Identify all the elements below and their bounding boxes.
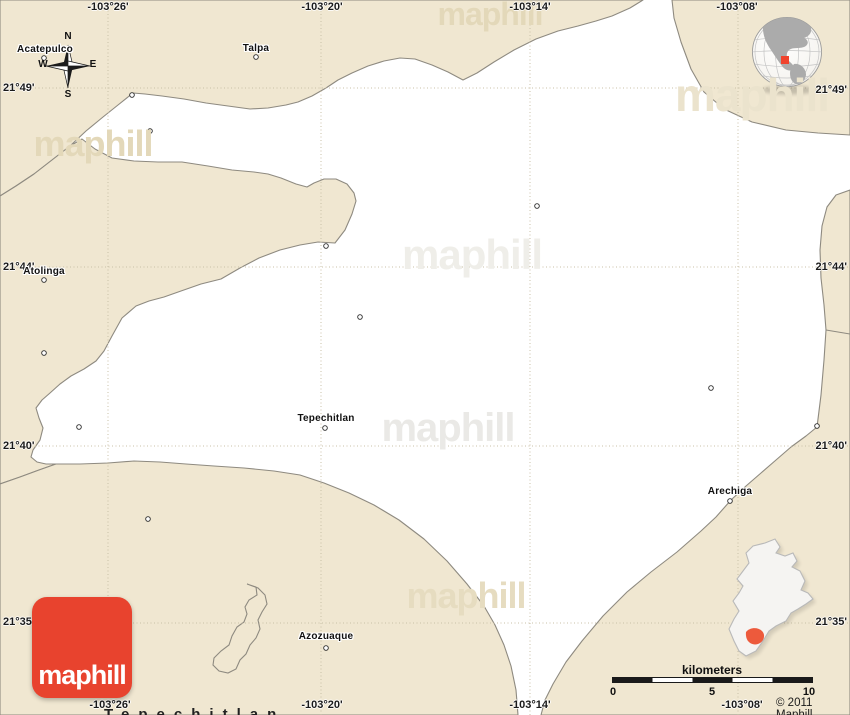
town-dot	[728, 499, 733, 504]
place-label-arechiga: Arechiga	[708, 486, 752, 497]
town-dot	[146, 517, 151, 522]
map-page: maphill maphill maphill maphill maphill …	[0, 0, 850, 715]
town-dot	[130, 93, 135, 98]
town-dot	[323, 426, 328, 431]
compass-n-label: N	[64, 31, 71, 42]
lon-label-top-4: -103°08'	[716, 1, 757, 13]
maphill-logo-text: maphill	[32, 660, 132, 691]
town-dot	[535, 204, 540, 209]
lon-label-top-2: -103°20'	[301, 1, 342, 13]
lon-label-bottom-2: -103°20'	[301, 699, 342, 711]
maphill-logo[interactable]: maphill	[32, 597, 132, 698]
place-label-azozuaque: Azozuaque	[299, 631, 354, 642]
lat-label-right-4: 21°35'	[816, 616, 848, 628]
town-dot	[324, 244, 329, 249]
lat-label-left-3: 21°40'	[3, 440, 35, 452]
town-dot	[42, 351, 47, 356]
lon-label-top-1: -103°26'	[87, 1, 128, 13]
lon-label-bottom-4: -103°08'	[721, 699, 762, 711]
scale-bar-label: kilometers	[682, 663, 742, 677]
place-label-acatepulco: Acatepulco	[17, 44, 73, 55]
lat-label-right-3: 21°40'	[816, 440, 848, 452]
place-label-talpa: Talpa	[243, 43, 269, 54]
lat-label-left-1: 21°49'	[3, 82, 35, 94]
place-label-atolinga: Atolinga	[23, 266, 65, 277]
lat-label-right-1: 21°49'	[816, 84, 848, 96]
compass-w-label: W	[38, 59, 47, 70]
town-dot	[42, 278, 47, 283]
lon-label-bottom-3: -103°14'	[509, 699, 550, 711]
lat-label-right-2: 21°44'	[816, 261, 848, 273]
compass-e-label: E	[90, 59, 97, 70]
compass-s-label: S	[65, 89, 72, 100]
globe-location-marker	[781, 56, 789, 64]
town-dot	[324, 646, 329, 651]
town-dot	[815, 424, 820, 429]
lat-label-left-4: 21°35'	[3, 616, 35, 628]
town-dot	[358, 315, 363, 320]
scale-tick-0: 0	[610, 686, 616, 698]
town-dot	[254, 55, 259, 60]
scale-bar	[613, 678, 813, 683]
town-dot	[148, 129, 153, 134]
town-dot	[709, 386, 714, 391]
town-dot	[77, 425, 82, 430]
lon-label-top-3: -103°14'	[509, 1, 550, 13]
copyright-text: © 2011 Maphill	[776, 697, 850, 715]
scale-tick-5: 5	[709, 686, 715, 698]
place-label-tepechitlan: Tepechitlan	[297, 413, 354, 424]
map-title-clipped: Tepechitlan	[104, 706, 285, 715]
